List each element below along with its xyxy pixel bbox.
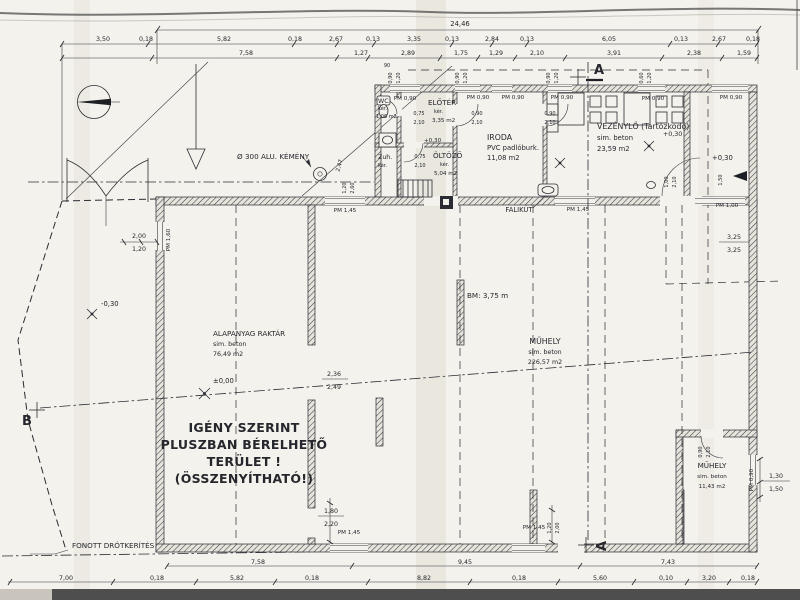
wall-sink-label: FALIKÚT [505, 205, 533, 214]
dim-label: 2,10 [471, 120, 482, 126]
dim-label: 1,80 [324, 508, 338, 515]
window-sill-label: PM 0,90 [467, 95, 490, 101]
room-finish: kér. [378, 105, 387, 112]
dim-label: 1,20 [396, 72, 402, 83]
dim-label: 2,89 [401, 50, 415, 57]
dim-label: 0,60 [639, 72, 645, 83]
section-a-marker-top: A [594, 63, 604, 78]
window-sill-label: PM 0,90 [720, 95, 743, 101]
dim-label: 7,58 [239, 50, 253, 57]
dim-label: 1,29 [489, 50, 503, 57]
dim-total: 24,46 [450, 20, 469, 28]
dim-label: 0,13 [520, 36, 534, 43]
room-wc: WC [378, 98, 389, 105]
fence-label: FONOTT DRÓTKERÍTÉS [72, 541, 155, 550]
dim-label: 2,00 [555, 522, 561, 533]
dim-label: 0,90 [544, 111, 555, 117]
dim-label: 0,18 [512, 575, 526, 582]
dim-label: 3,25 [727, 247, 741, 254]
window-sill-label: PM 0,90 [749, 468, 755, 491]
window-sill-label: PM 1,45 [338, 530, 361, 536]
room-finish: kér. [440, 161, 449, 168]
dim-label: 3,35 [407, 36, 421, 43]
column-markers [87, 141, 654, 399]
room-finish: PVC padlóburk. [487, 144, 539, 152]
clear-height-label: BM: 3,75 m [467, 291, 508, 300]
room-finish: sim. beton [597, 134, 633, 142]
dim-label: 2,10 [413, 120, 424, 126]
dim-label: 1,30 [769, 473, 783, 480]
room-area: 1,06 m2 [376, 114, 397, 120]
dim-label: 1,20 [132, 246, 146, 253]
dim-label: 8,82 [417, 575, 431, 582]
dim-label: 0,13 [366, 36, 380, 43]
dim-label: 0,75 [413, 111, 424, 117]
dim-label: 2,84 [485, 36, 499, 43]
dim-label: 0,75 [414, 154, 425, 160]
dim-label: 1,20 [647, 72, 653, 83]
dim-label: 2,67 [712, 36, 726, 43]
dim-label: 2,60 [350, 182, 356, 193]
dim-label: 2,20 [324, 521, 338, 528]
dim-label: 1,00 [664, 176, 670, 187]
level-minus: -0,30 [101, 300, 119, 308]
note-line: IGÉNY SZERINT [188, 420, 299, 435]
window-sill-label: PM 1,00 [716, 203, 739, 209]
dim-label: 1,20 [342, 182, 348, 193]
dim-label: 2,67 [329, 36, 343, 43]
dim-label: 1,50 [718, 174, 724, 185]
rentable-note: IGÉNY SZERINT PLUSZBAN BÉRELHETŐ TERÜLET… [161, 420, 328, 486]
dim-label: 0,90 [388, 72, 394, 83]
dim-label: 2,49 [327, 384, 341, 391]
dim-label: 0,18 [305, 575, 319, 582]
dimension-chain-bottom: 7,58 9,45 7,43 7,00 0,18 5,82 0,18 8,82 … [59, 559, 755, 582]
dim-label: 1,50 [769, 486, 783, 493]
room-area: 23,59 m2 [597, 145, 630, 153]
floor-plan-drawing: A A B [0, 0, 800, 600]
basin-icon [647, 182, 656, 189]
room-iroda: IRODA [487, 133, 513, 142]
window-sill-label: PM 1,45 [523, 525, 546, 531]
window-sill-label: PM 0,90 [551, 95, 574, 101]
room-raktar: ALAPANYAG RAKTÁR [213, 329, 285, 338]
dim-label: 9,45 [458, 559, 472, 566]
dim-label: 1,20 [463, 72, 469, 83]
dim-label: 6,05 [602, 36, 616, 43]
dim-label: 0,90 [455, 72, 461, 83]
room-area: 11,43 m2 [699, 484, 726, 490]
window-sill-label: PM 1,45 [334, 208, 357, 214]
room-area: 11,08 m2 [487, 154, 520, 162]
dim-label: 2,10 [706, 446, 712, 457]
dim-label: 2,10 [530, 50, 544, 57]
entry-direction-arrow [733, 171, 747, 181]
dim-label: 0,13 [445, 36, 459, 43]
dim-label: 2,10 [544, 120, 555, 126]
dim-label: 5,82 [217, 36, 231, 43]
dim-label: 0,90 [698, 446, 704, 457]
room-finish: sim. beton [213, 341, 246, 348]
room-finish: kér. [378, 162, 387, 169]
dim-label: 3,25 [727, 234, 741, 241]
dim-label: 7,00 [59, 575, 73, 582]
dim-label: 2,10 [672, 176, 678, 187]
dim-label: 1,20 [547, 522, 553, 533]
dim-label: 0,90 [471, 111, 482, 117]
dim-label: 1,27 [354, 50, 368, 57]
dim-label: 0,90 [546, 72, 552, 83]
chimney-icon [314, 168, 327, 181]
chimney-label: Ø 300 ALU. KÉMÉNY [237, 152, 310, 161]
dim-label: 3,50 [96, 36, 110, 43]
structural-grid [236, 205, 682, 544]
dim-label: 5,82 [230, 575, 244, 582]
dim-label: 2,36 [327, 371, 341, 378]
room-area: 226,57 m2 [528, 359, 562, 366]
dim-label: 2,00 [132, 233, 146, 240]
level-marker: +0,30 [424, 138, 442, 144]
dim-label: 0,18 [139, 36, 153, 43]
dim-label: 0,10 [659, 575, 673, 582]
window-sill-label: PM 0,90 [642, 96, 665, 102]
room-muhely-small: MŰHELY [698, 461, 727, 470]
level-plus-right: +0,30 [712, 154, 733, 162]
dim-label: 0,18 [150, 575, 164, 582]
level-marker: +0,30 [663, 131, 682, 138]
room-finish: sim. beton [697, 474, 727, 480]
room-area: 5,04 m2 [434, 171, 457, 177]
dim-label: 3,91 [607, 50, 621, 57]
dim-label: 90 [384, 63, 390, 69]
room-area: 76,49 m2 [213, 351, 243, 358]
room-finish: sim. beton [528, 349, 561, 356]
room-muhely: MŰHELY [529, 337, 561, 346]
window-sill-label: PM 1,45 [567, 207, 590, 213]
dim-label: 5,60 [593, 575, 607, 582]
dim-label: 2,38 [687, 50, 701, 57]
dim-label: 1,75 [454, 50, 468, 57]
note-line: TERÜLET ! [207, 454, 282, 469]
section-b-line [40, 352, 754, 408]
window-sill-label: PM 1,60 [166, 228, 172, 251]
annotations: Ø 300 ALU. KÉMÉNY FALIKÚT FONOTT DRÓTKER… [30, 152, 733, 554]
dim-label: 7,58 [251, 559, 265, 566]
dim-label: 2,10 [414, 163, 425, 169]
dim-label: 0,18 [746, 36, 760, 43]
room-oltozo: ÖLTÖZŐ [433, 151, 463, 160]
level-zero: ±0,00 [213, 377, 234, 385]
dim-label: 0,18 [741, 575, 755, 582]
dim-label: 7,43 [661, 559, 675, 566]
dim-label: 0,13 [674, 36, 688, 43]
section-a-marker-bottom: A [595, 541, 610, 551]
dim-label: 0,18 [288, 36, 302, 43]
room-eloter: ELŐTÉR [428, 98, 456, 107]
room-vezenylo: VEZÉNYLŐ (Tartózkodó) [597, 122, 689, 131]
dim-label: 3,20 [702, 575, 716, 582]
note-line: (ÖSSZENYÍTHATÓ!) [175, 471, 314, 486]
note-line: PLUSZBAN BÉRELHETŐ [161, 437, 328, 452]
dim-label: 2,47 [336, 159, 345, 173]
window-sill-label: PM 0,90 [502, 95, 525, 101]
room-finish: kér. [434, 108, 443, 115]
scanned-floor-plan: A A B [0, 0, 800, 600]
window-sill-label: PM 0,90 [394, 96, 417, 102]
dim-label: 1,59 [737, 50, 751, 57]
section-b-marker: B [22, 414, 32, 429]
site-boundary-fence [18, 201, 66, 550]
dim-label: 1,20 [554, 72, 560, 83]
room-area: 3,35 m2 [432, 118, 455, 124]
room-shower: Zuh. [378, 154, 392, 161]
